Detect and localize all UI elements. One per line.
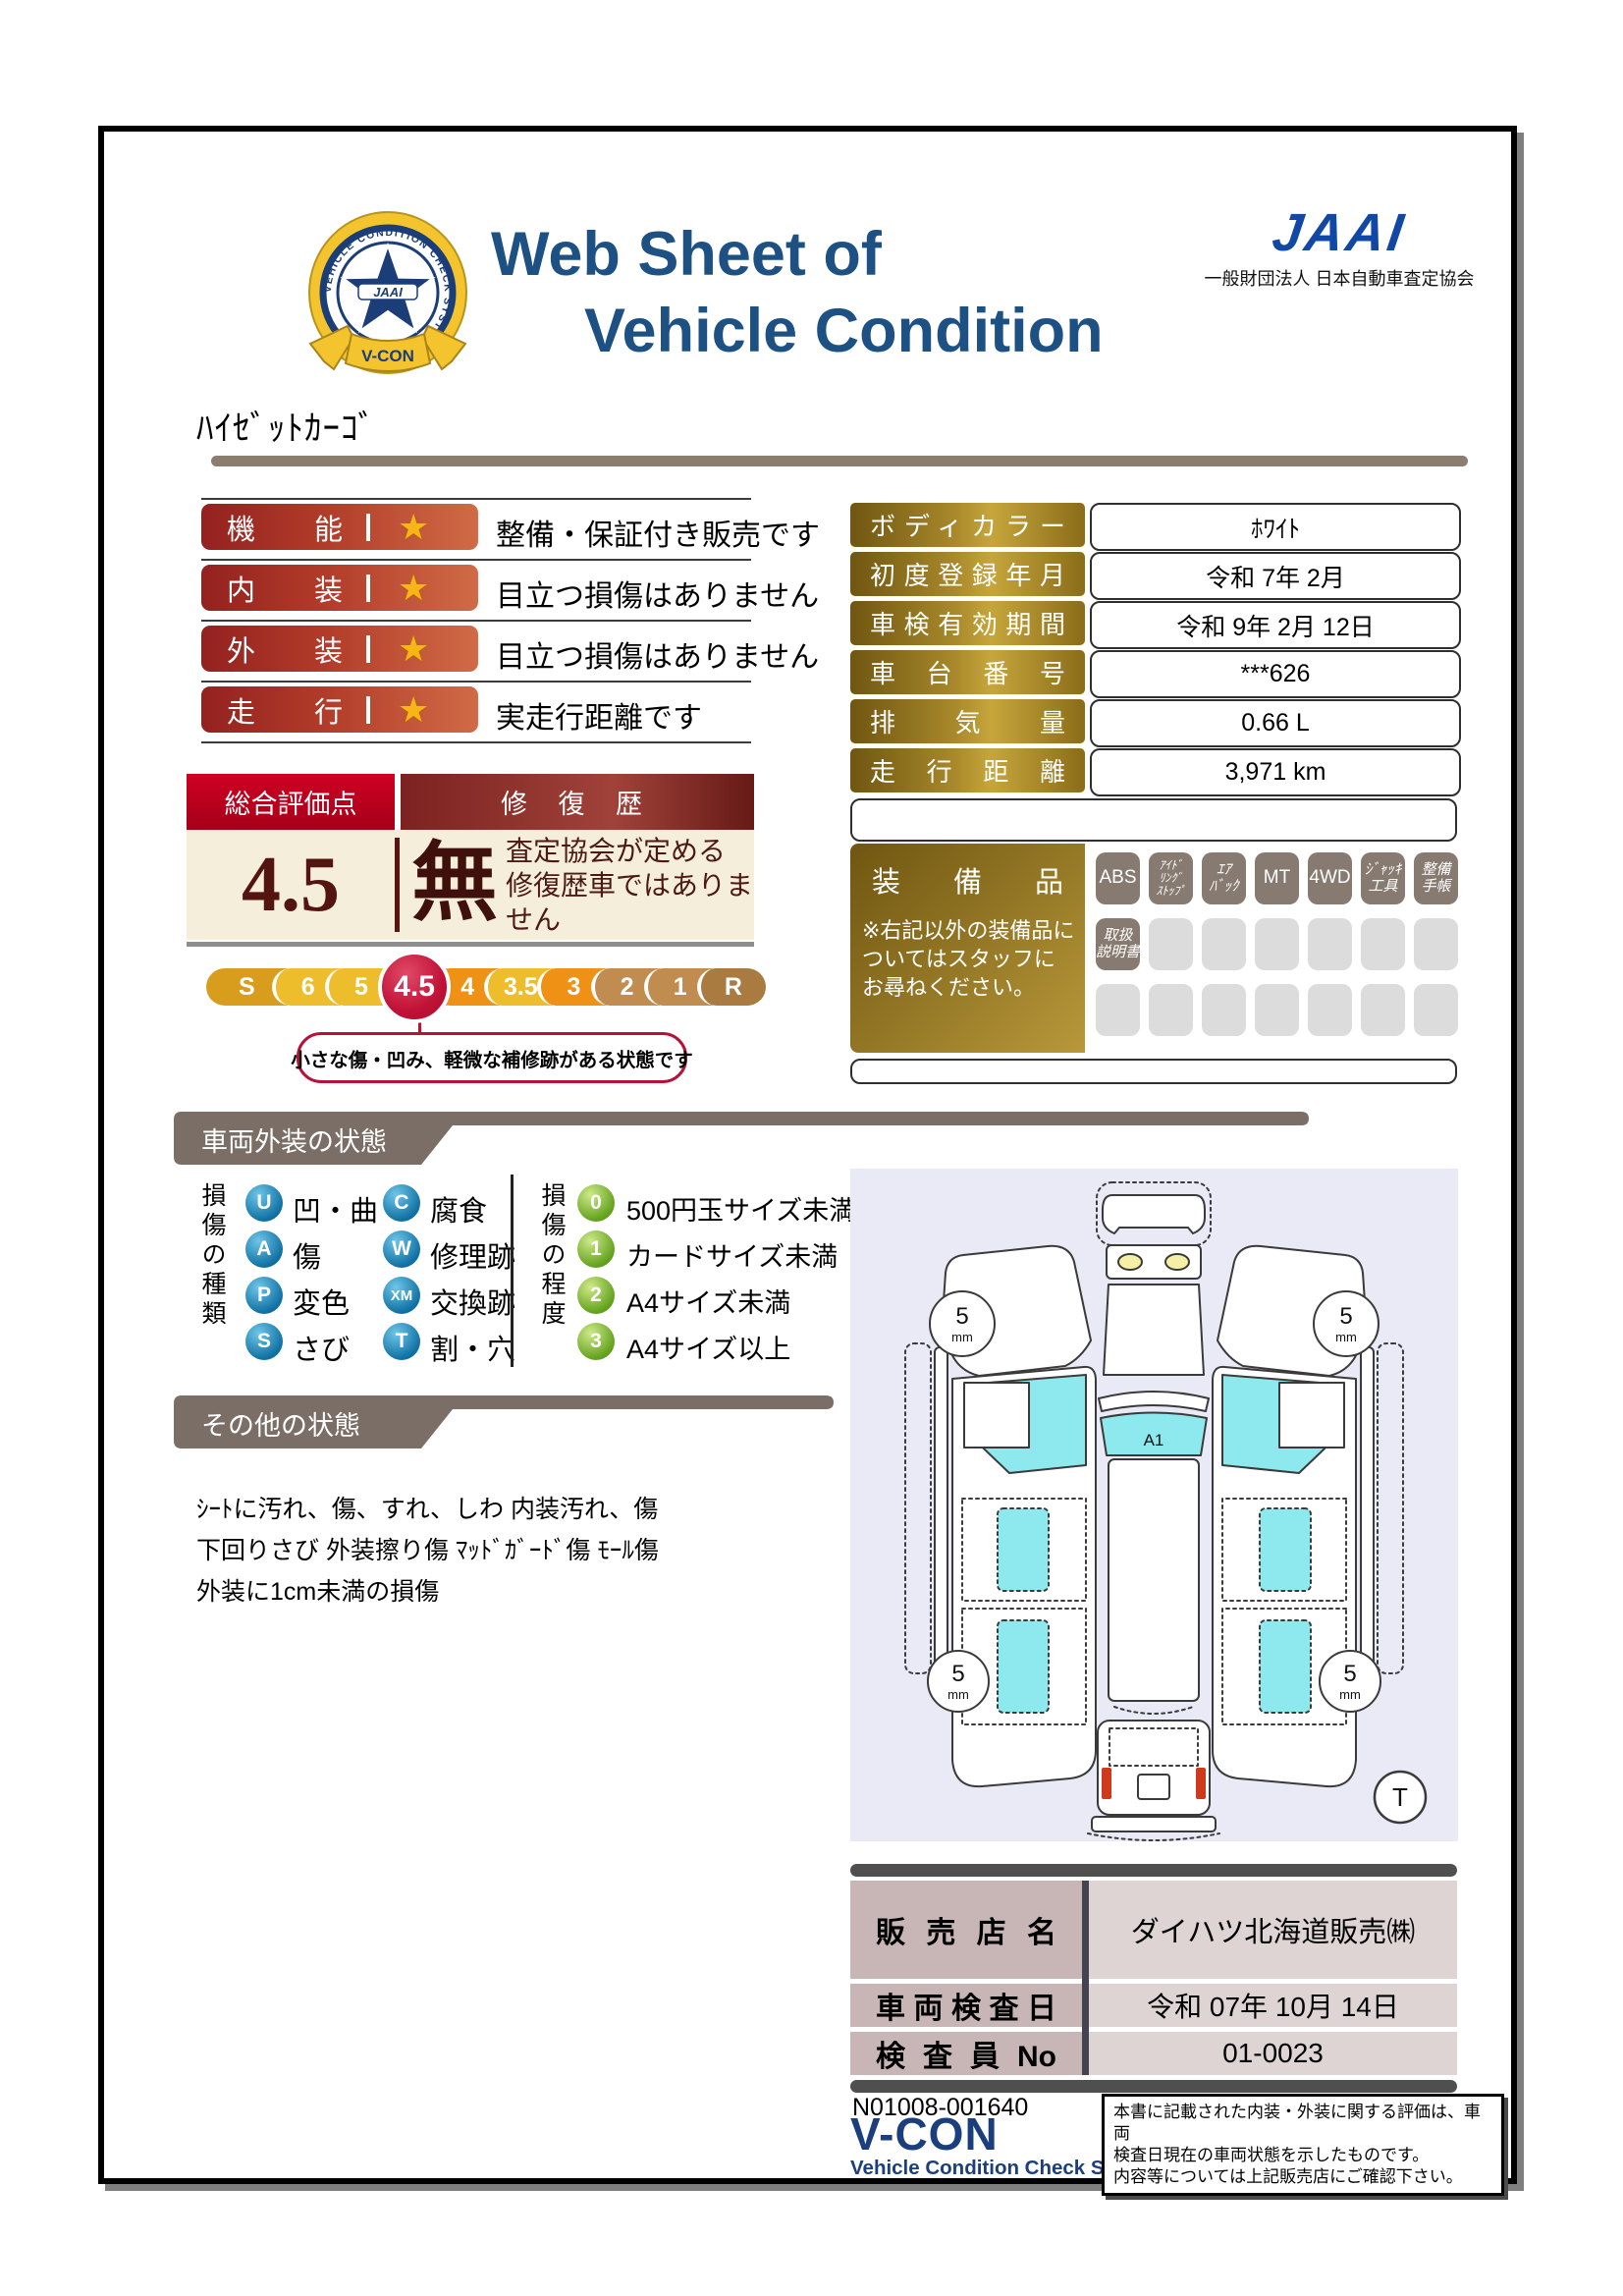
damage-label: 凹・曲 [293,1188,378,1230]
equipment-panel: 装備品 ※右記以外の装備品に ついてはスタッフに お尋ねください。 [850,844,1085,1053]
equipment-badge-empty [1202,918,1246,970]
rating-description: 実走行距離です [496,693,702,737]
info-value-first-registration: 令和 7年 2月 [1090,552,1461,600]
jaai-organization-name: 一般財団法人 日本自動車査定協会 [1196,265,1483,291]
grade-callout: 小さな傷・凹み、軽微な補修跡がある状態です [297,1032,687,1083]
divider [201,559,751,561]
rating-pill-exterior: 外装 ★ [201,626,478,672]
equipment-badge-4wd: 4WD [1308,852,1352,904]
star-icon: ★ [398,631,429,667]
divider [201,681,751,683]
equipment-badge-empty [1255,918,1299,970]
equipment-badge-empty [1308,984,1352,1036]
info-value-displacement: 0.66 L [1090,699,1461,747]
overall-score-label: 総合評価点 [187,774,395,830]
divider [1082,1881,1089,2075]
repair-history-content: 無 査定協会が定める 修復歴車ではありません [400,830,754,940]
info-label-inspection-validity: 車検有効期間 [850,601,1085,645]
equipment-badge-empty [1149,984,1193,1036]
jaai-logo: JAAI [1192,202,1488,263]
equipment-badge-empty [1308,918,1352,970]
overall-score-value: 4.5 [187,830,395,940]
rating-pill-mileage: 走行 ★ [201,686,478,733]
empty-field-box [850,1059,1457,1084]
grade-segment-selected: 4.5 [378,968,447,1006]
damage-code-T: T [383,1323,420,1360]
degree-label: カードサイズ未満 [626,1235,838,1274]
vehicle-name: ﾊｲｾﾞｯﾄｶｰｺﾞ [196,401,376,451]
divider [366,514,370,541]
equipment-row: ABS ｱｲﾄﾞ ﾘﾝｸﾞ ｽﾄｯﾌﾟ ｴｱ ﾊﾞｯｸ MT 4WD ｼﾞｬｯｷ… [1096,852,1461,904]
damage-label: 交換跡 [430,1281,515,1322]
svg-text:mm: mm [947,1687,969,1702]
info-value-mileage: 3,971 km [1090,748,1461,796]
repair-history-value: 無 [411,842,498,928]
other-condition-text: ｼｰﾄに汚れ、傷、すれ、しわ 内装汚れ、傷 下回りさび 外装擦り傷 ﾏｯﾄﾞｶﾞ… [196,1489,659,1613]
windshield-mark-label: A1 [1144,1431,1164,1449]
damage-label: 変色 [293,1281,350,1322]
degree-code-0: 0 [577,1184,615,1222]
rating-label: 外装 [227,629,343,670]
header-divider-bar [211,456,1468,466]
dealer-value-inspection-date: 令和 07年 10月 14日 [1089,1984,1457,2027]
selected-grade-balloon: 4.5 [378,951,451,1023]
svg-text:車両外装の状態: 車両外装の状態 [201,1127,387,1157]
degree-label: 500円玉サイズ未満 [626,1189,855,1228]
info-value-body-color: ﾎﾜｲﾄ [1090,503,1461,551]
equipment-badge-empty [1361,984,1405,1036]
tire-mark-label: T [1392,1782,1408,1812]
dealer-label-inspection-date: 車両検査日 [850,1984,1082,2027]
svg-text:その他の状態: その他の状態 [201,1411,360,1441]
degree-label: A4サイズ以上 [626,1328,790,1366]
degree-code-1: 1 [577,1230,615,1268]
info-label-first-registration: 初度登録年月 [850,552,1085,596]
damage-code-S: S [245,1323,283,1360]
empty-field-box [850,798,1457,842]
equipment-badge-empty [1414,918,1458,970]
info-label-body-color: ボディカラー [850,503,1085,547]
divider [366,696,370,724]
repair-history-label: 修 復 歴 [401,774,754,830]
damage-code-W: W [383,1230,420,1268]
info-label-mileage: 走行距離 [850,748,1085,793]
tread-depth-unit: mm [951,1330,973,1344]
dealer-label-inspector-no: 検査員No [850,2032,1082,2075]
divider [511,1175,514,1367]
damage-label: さび [293,1327,350,1368]
equipment-badge-empty [1255,984,1299,1036]
equipment-badge-idling-stop: ｱｲﾄﾞ ﾘﾝｸﾞ ｽﾄｯﾌﾟ [1149,852,1193,904]
info-label-displacement: 排気量 [850,699,1085,743]
divider [201,741,751,743]
vehicle-diagram-panel: A1 5 mm 5 mm 5 mm 5 mm T [850,1169,1458,1841]
damage-degree-title: 損傷の程度 [534,1182,569,1330]
damage-code-A: A [245,1230,283,1268]
damage-code-P: P [245,1277,283,1314]
dealer-value-shop-name: ダイハツ北海道販売㈱ [1089,1881,1457,1979]
divider [366,574,370,602]
rating-description: 整備・保証付き販売です [496,511,820,554]
equipment-badge-empty [1096,984,1140,1036]
svg-text:V-CON: V-CON [361,347,414,365]
dealer-table-top-bar [850,1864,1457,1877]
equipment-note: ※右記以外の装備品に ついてはスタッフに お尋ねください。 [862,916,1077,1002]
equipment-row: 取扱 説明書 [1096,918,1461,970]
damage-label: 割・穴 [430,1327,515,1368]
rating-pill-function: 機能 ★ [201,504,478,550]
info-value-inspection-validity: 令和 9年 2月 12日 [1090,601,1461,649]
vcon-logo: V-CON [850,2111,999,2157]
dealer-table-bottom-bar [850,2080,1457,2093]
rating-pill-interior: 内装 ★ [201,565,478,611]
degree-code-2: 2 [577,1277,615,1314]
degree-code-3: 3 [577,1323,615,1360]
exterior-condition-banner: 車両外装の状態 [174,1112,1309,1165]
equipment-badge-empty [1361,918,1405,970]
damage-label: 修理跡 [430,1234,515,1276]
info-value-chassis-number: ***626 [1090,650,1461,698]
star-icon: ★ [398,692,429,728]
overall-score-body: 4.5 無 査定協会が定める 修復歴車ではありません [187,830,754,940]
damage-label: 腐食 [430,1188,487,1230]
equipment-title: 装備品 [872,859,1063,901]
divider [201,498,751,500]
svg-text:mm: mm [1335,1330,1357,1344]
vehicle-exterior-diagram: A1 5 mm 5 mm 5 mm 5 mm T [850,1169,1458,1841]
equipment-row [1096,984,1461,1036]
degree-label: A4サイズ未満 [626,1282,790,1320]
vehicle-condition-sheet: VEHICLE CONDITION CHECK SYSTEM JAAI V-CO… [0,0,1623,2296]
damage-label: 傷 [293,1234,321,1276]
equipment-badges: ABS ｱｲﾄﾞ ﾘﾝｸﾞ ｽﾄｯﾌﾟ ｴｱ ﾊﾞｯｸ MT 4WD ｼﾞｬｯｷ… [1096,852,1461,1036]
damage-code-U: U [245,1184,283,1222]
vcon-badge-icon: VEHICLE CONDITION CHECK SYSTEM JAAI V-CO… [295,206,481,399]
damage-type-title: 損傷の種類 [194,1182,230,1330]
rating-label: 走行 [227,689,343,731]
info-label-chassis-number: 車台番号 [850,650,1085,694]
divider [187,942,754,947]
disclaimer-note: 本書に記載された内装・外装に関する評価は、車両 検査日現在の車両状態を示したもの… [1102,2094,1504,2196]
equipment-badge-abs: ABS [1096,852,1140,904]
equipment-badge-jack-tools: ｼﾞｬｯｷ 工具 [1361,852,1405,904]
svg-text:mm: mm [1339,1687,1361,1702]
rating-description: 目立つ損傷はありません [496,572,819,615]
equipment-badge-owners-manual: 取扱 説明書 [1096,918,1140,970]
divider [201,620,751,622]
jaai-brand: JAAI 一般財団法人 日本自動車査定協会 [1196,202,1483,291]
damage-code-XM: XM [383,1277,420,1314]
overall-score-header: 総合評価点 修 復 歴 [187,774,754,830]
svg-text:5: 5 [1339,1303,1352,1330]
other-condition-banner: その他の状態 [174,1395,834,1449]
rating-label: 機能 [227,507,343,548]
rating-label: 内装 [227,568,343,609]
page-title: Web Sheet of Vehicle Condition [491,216,1104,369]
divider [366,635,370,663]
svg-text:JAAI: JAAI [373,285,403,300]
svg-text:5: 5 [951,1661,964,1687]
grade-segment: R [697,968,766,1006]
equipment-badge-mt: MT [1255,852,1299,904]
tread-depth-value: 5 [955,1303,968,1330]
dealer-value-inspector-no: 01-0023 [1089,2032,1457,2075]
page-title-line2: Vehicle Condition [584,293,1104,369]
dealer-label-shop-name: 販売店名 [850,1881,1082,1979]
equipment-badge-service-book: 整備 手帳 [1414,852,1458,904]
repair-history-note: 査定協会が定める 修復歴車ではありません [506,834,754,937]
svg-text:5: 5 [1343,1661,1356,1687]
equipment-badge-empty [1202,984,1246,1036]
damage-code-C: C [383,1184,420,1222]
rating-description: 目立つ損傷はありません [496,632,819,676]
equipment-badge-airbag: ｴｱ ﾊﾞｯｸ [1202,852,1246,904]
star-icon: ★ [398,510,429,545]
equipment-badge-empty [1149,918,1193,970]
grade-scale: S 6 5 4.5 4 3.5 3 2 1 R [206,968,766,1006]
page-title-line1: Web Sheet of [491,216,1104,293]
equipment-badge-empty [1414,984,1458,1036]
star-icon: ★ [398,571,429,606]
